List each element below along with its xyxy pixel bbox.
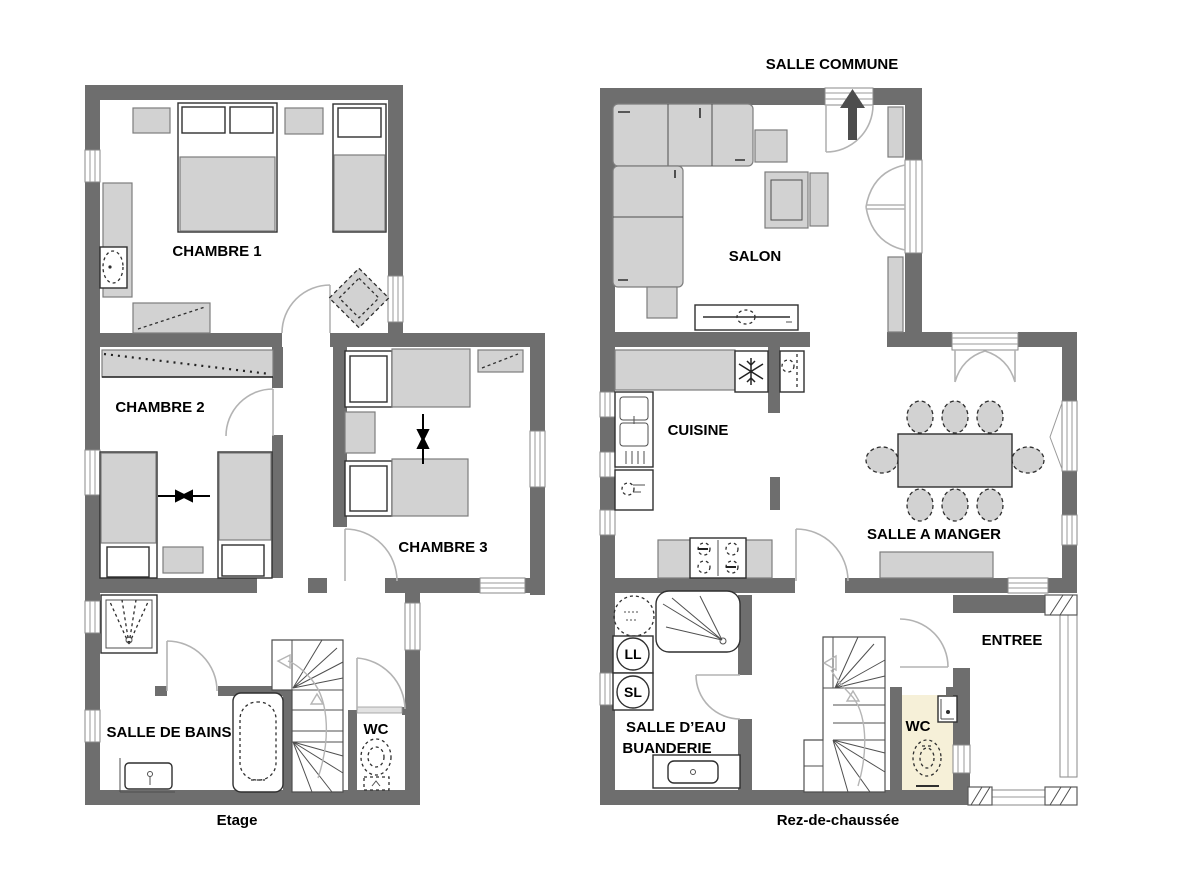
title-rdc: Rez-de-chaussée <box>777 812 900 829</box>
room-chambre-3: CHAMBRE 3 <box>345 349 523 556</box>
door-chambre1 <box>282 285 330 333</box>
french-doors-salon <box>866 165 905 250</box>
hatched-post <box>968 787 992 805</box>
label-lave-linge: LL <box>624 646 642 662</box>
room-chambre-2: CHAMBRE 2 <box>100 350 273 578</box>
label-salle-a-manger: SALLE A MANGER <box>867 526 1001 543</box>
shower <box>101 595 157 653</box>
room-entree: ENTREE <box>982 632 1043 649</box>
hatched-post <box>1045 787 1077 805</box>
nightstand <box>285 108 323 134</box>
window <box>1050 401 1077 471</box>
fridge <box>735 351 768 392</box>
window <box>85 601 100 633</box>
single-bed <box>218 452 272 578</box>
label-cuisine: CUISINE <box>668 422 729 439</box>
join-arrows <box>418 414 428 464</box>
hatched-post <box>1045 595 1077 615</box>
tv-console <box>695 305 798 330</box>
window <box>600 392 615 417</box>
label-salle-deau-1: SALLE D’EAU <box>626 719 726 736</box>
radiator <box>888 257 903 332</box>
armchair <box>765 172 828 228</box>
door-chambre3 <box>345 529 397 581</box>
window <box>388 276 403 322</box>
entree-door <box>992 790 1045 805</box>
window <box>1062 515 1077 545</box>
armchair-rotated <box>329 268 388 327</box>
nightstand <box>133 108 170 133</box>
single-bed <box>333 104 386 232</box>
dining-table <box>898 434 1012 487</box>
roof-window <box>133 303 210 333</box>
floor-plan-sheet: CHAMBRE 1 CHAMBR <box>0 0 1184 888</box>
label-chambre-2: CHAMBRE 2 <box>115 399 204 416</box>
water-heater <box>614 596 654 636</box>
kitchen-counter-top <box>615 350 735 390</box>
double-bed <box>178 103 277 232</box>
toilet <box>361 739 391 790</box>
label-salle-de-bains: SALLE DE BAINS <box>106 724 231 741</box>
room-salle-de-bains: SALLE DE BAINS <box>101 595 283 792</box>
dryer: SL <box>613 673 653 710</box>
title-etage: Etage <box>217 812 258 829</box>
label-wc-rdc: WC <box>906 718 931 735</box>
washing-machine: LL <box>613 636 653 673</box>
stove <box>690 538 746 578</box>
window <box>530 431 545 487</box>
bathroom-sink <box>120 758 175 792</box>
french-door-frame <box>905 160 922 253</box>
label-wc-etage: WC <box>364 721 389 738</box>
single-bed <box>100 452 157 578</box>
single-bed <box>345 459 468 516</box>
floor-plan-rdc: SALLE COMMUNE SALON <box>600 56 1077 829</box>
bathtub <box>233 693 283 792</box>
join-arrows <box>158 491 210 501</box>
label-salle-commune: SALLE COMMUNE <box>766 56 899 73</box>
label-chambre-3: CHAMBRE 3 <box>398 539 487 556</box>
label-salle-deau-2: BUANDERIE <box>622 740 711 757</box>
room-salle-deau: LL SL SALLE D’EAU BUANDERIE <box>613 591 740 788</box>
window <box>600 452 615 477</box>
sideboard <box>880 552 993 578</box>
door-chambre2 <box>226 389 273 436</box>
room-wc-etage: WC <box>361 721 391 790</box>
window <box>85 450 100 495</box>
roof-window <box>478 350 523 372</box>
window <box>85 150 100 182</box>
window <box>480 578 525 593</box>
nightstand <box>345 412 375 453</box>
window <box>600 510 615 535</box>
window <box>405 603 420 650</box>
floor-plans-svg: CHAMBRE 1 CHAMBR <box>0 0 1184 888</box>
single-bed <box>345 349 470 407</box>
window <box>953 745 970 773</box>
shower-rdc <box>656 591 740 652</box>
side-table <box>647 287 677 318</box>
door-wc-etage <box>357 658 405 713</box>
nightstand <box>163 547 203 573</box>
oven-column <box>780 351 804 392</box>
door-hall-wc <box>900 619 948 667</box>
room-salle-a-manger: SALLE A MANGER <box>866 401 1044 578</box>
entree-glazing <box>1060 615 1077 777</box>
side-table <box>755 130 787 162</box>
sloped-ceiling-strip <box>102 350 273 377</box>
label-salon: SALON <box>729 248 782 265</box>
door-salle-de-bains <box>167 641 217 691</box>
kitchen-sink-unit <box>615 392 653 467</box>
room-chambre-1: CHAMBRE 1 <box>100 103 389 333</box>
kitchen-unit <box>615 470 653 510</box>
radiator <box>888 107 903 157</box>
window <box>1008 578 1048 593</box>
floor-plan-etage: CHAMBRE 1 CHAMBR <box>85 85 545 829</box>
washbasin <box>100 247 127 288</box>
window <box>85 710 100 742</box>
laundry-sink <box>653 755 740 788</box>
door-salle-deau <box>696 675 740 719</box>
corner-sink <box>938 696 957 722</box>
label-seche-linge: SL <box>624 684 642 700</box>
double-door-frame <box>952 333 1018 350</box>
door-salle-a-manger <box>796 529 848 581</box>
label-chambre-1: CHAMBRE 1 <box>172 243 261 260</box>
label-entree: ENTREE <box>982 632 1043 649</box>
staircase-rdc <box>804 637 885 792</box>
double-doors-terrasse <box>955 350 1015 382</box>
